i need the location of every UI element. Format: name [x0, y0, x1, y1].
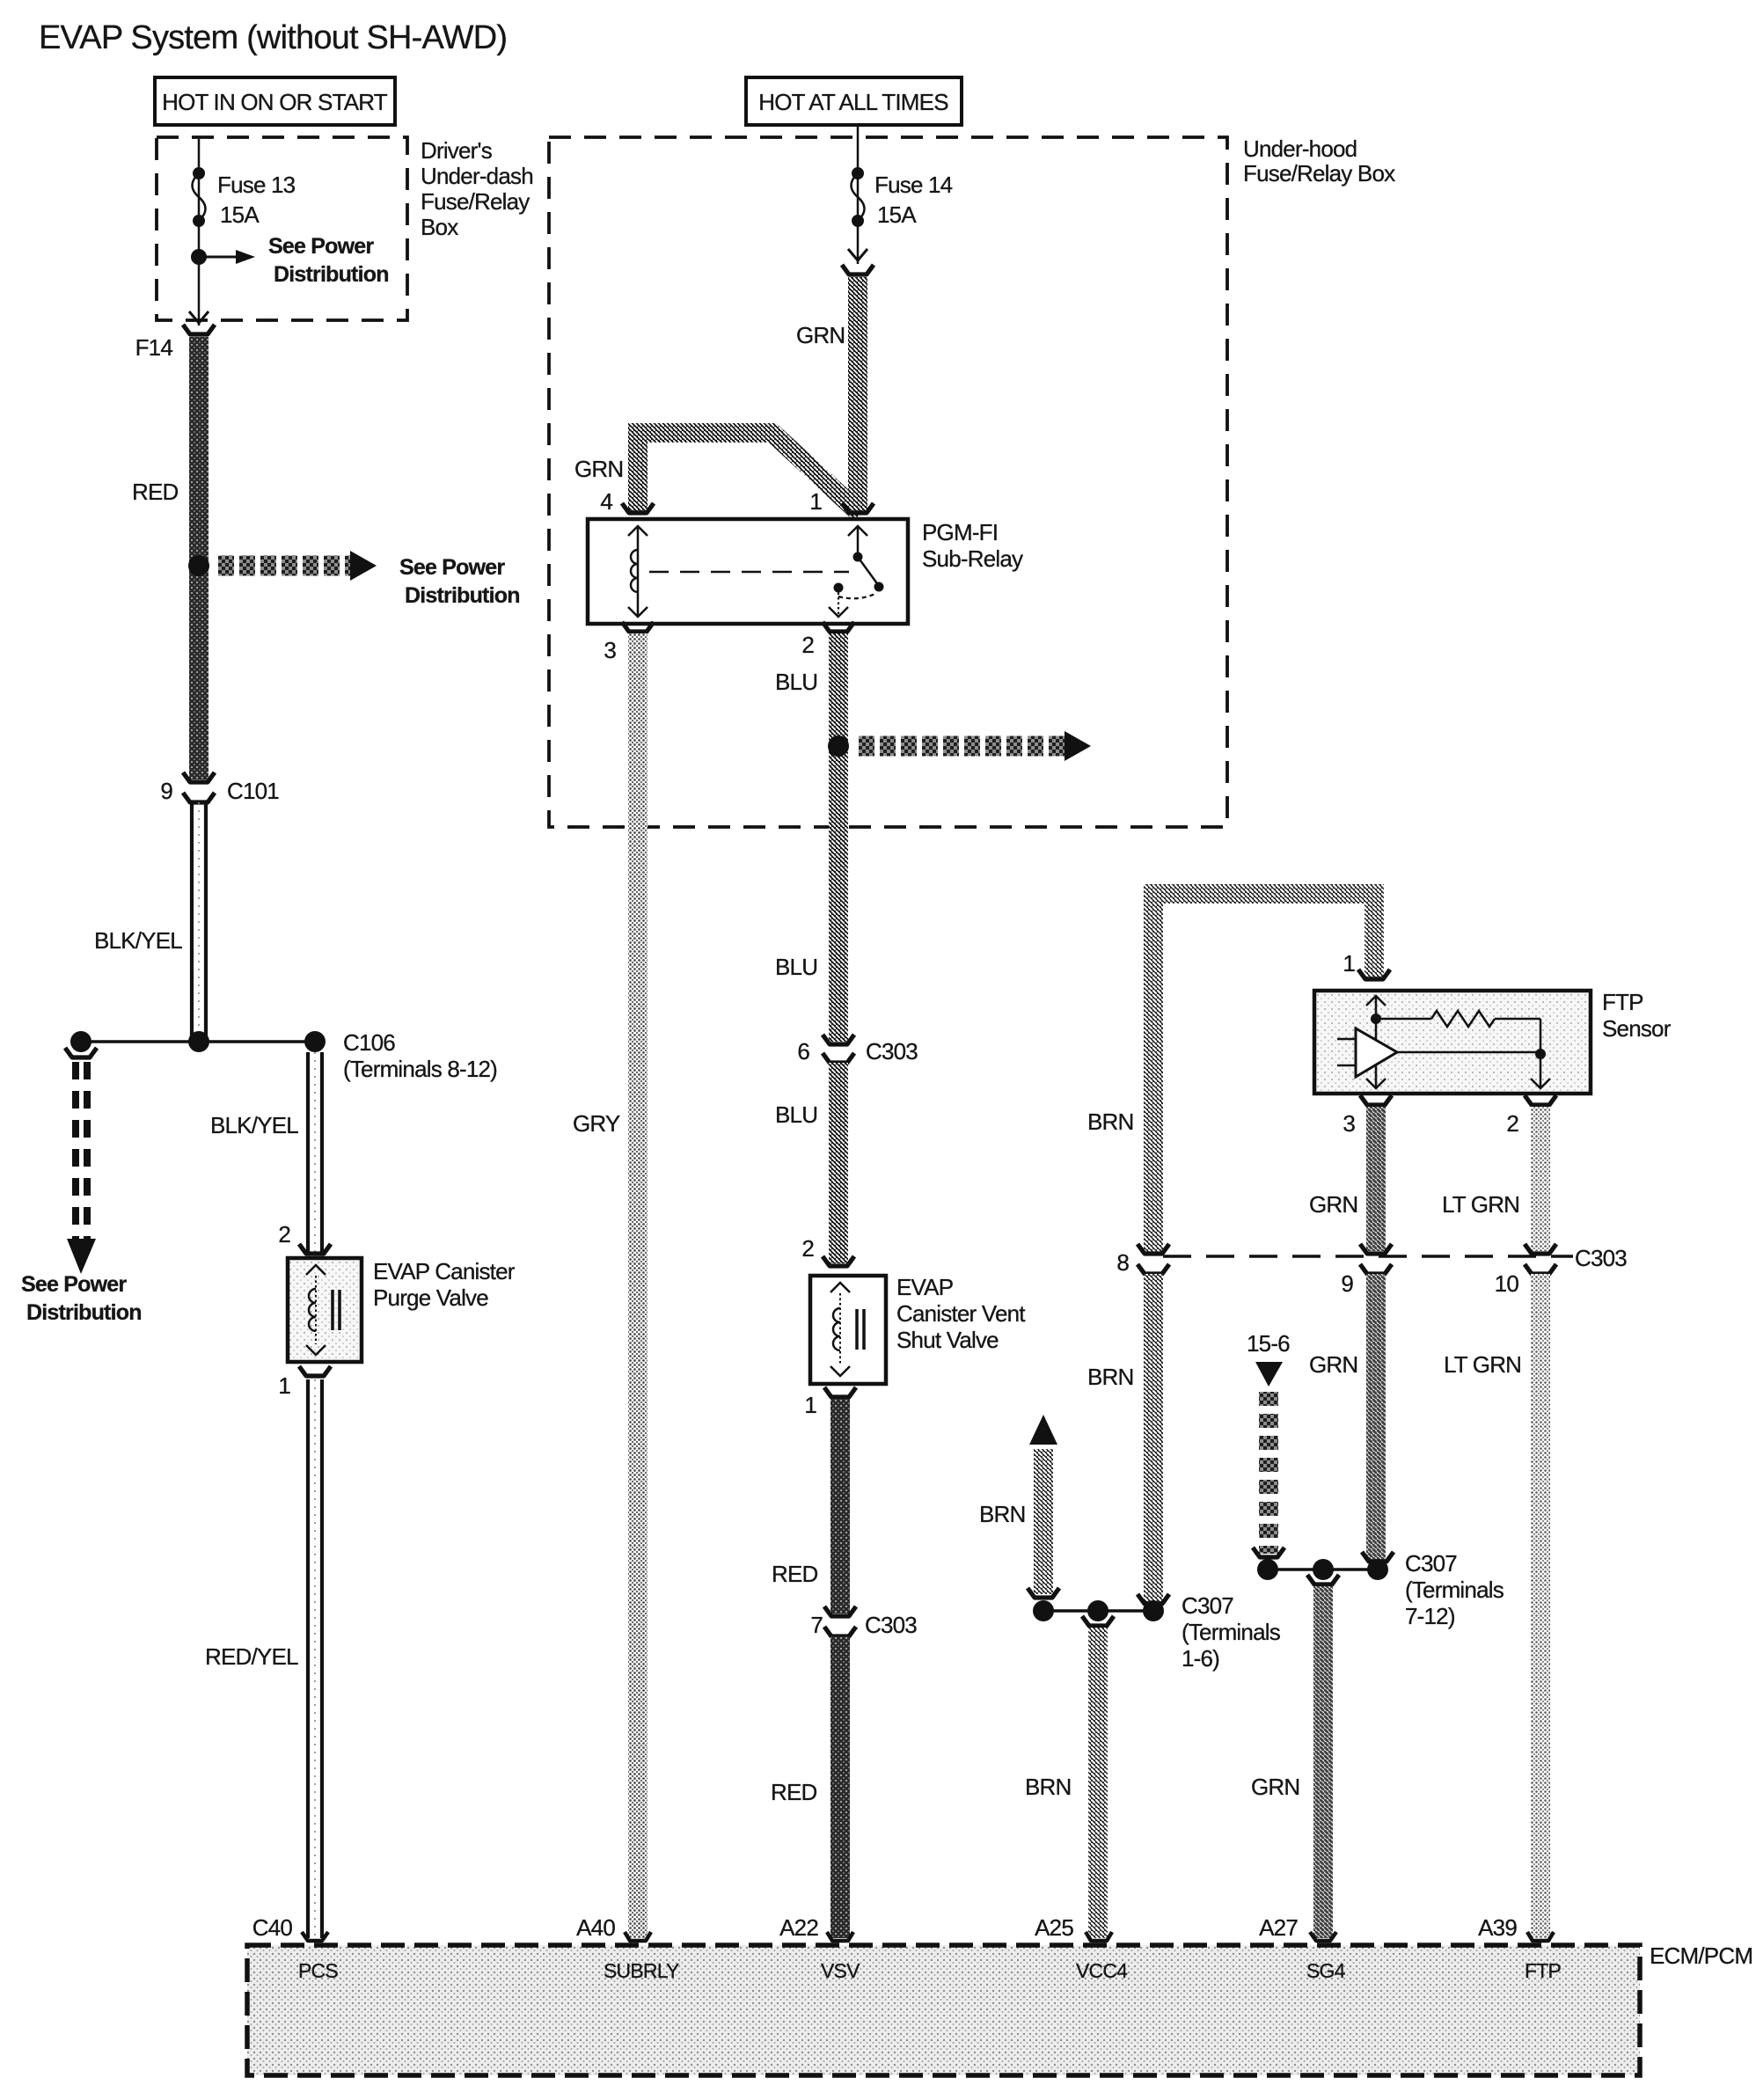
- svg-text:Canister Vent: Canister Vent: [896, 1300, 1026, 1327]
- svg-text:VCC4: VCC4: [1076, 1959, 1128, 1982]
- svg-text:HOT IN ON OR START: HOT IN ON OR START: [162, 89, 388, 115]
- svg-text:15A: 15A: [877, 201, 917, 228]
- svg-text:BRN: BRN: [1087, 1109, 1134, 1135]
- svg-text:BLU: BLU: [775, 1101, 817, 1128]
- svg-text:Under-hood: Under-hood: [1243, 135, 1357, 162]
- svg-text:Distribution: Distribution: [405, 583, 520, 608]
- svg-text:6: 6: [797, 1038, 809, 1065]
- svg-text:Shut Valve: Shut Valve: [896, 1327, 999, 1353]
- svg-text:1: 1: [278, 1372, 290, 1399]
- svg-text:1: 1: [809, 488, 822, 515]
- svg-text:Fuse/Relay Box: Fuse/Relay Box: [1243, 160, 1395, 187]
- svg-text:C101: C101: [227, 778, 279, 804]
- svg-text:C106: C106: [343, 1029, 395, 1056]
- svg-text:2: 2: [278, 1221, 290, 1248]
- svg-text:Box: Box: [421, 214, 458, 240]
- svg-text:SUBRLY: SUBRLY: [604, 1959, 679, 1982]
- svg-text:3: 3: [1343, 1110, 1355, 1137]
- svg-text:C307: C307: [1182, 1592, 1233, 1619]
- svg-text:GRN: GRN: [1251, 1774, 1299, 1800]
- svg-text:GRN: GRN: [574, 456, 623, 482]
- svg-text:A40: A40: [576, 1914, 615, 1941]
- svg-text:RED: RED: [132, 479, 179, 505]
- svg-text:Fuse 13: Fuse 13: [217, 172, 296, 198]
- svg-text:ECM/PCM: ECM/PCM: [1650, 1943, 1752, 1969]
- svg-text:HOT AT ALL TIMES: HOT AT ALL TIMES: [758, 89, 948, 115]
- svg-text:C303: C303: [865, 1612, 917, 1638]
- svg-text:8: 8: [1116, 1249, 1129, 1276]
- svg-text:EVAP System (without SH-AWD): EVAP System (without SH-AWD): [39, 19, 507, 56]
- svg-text:A22: A22: [779, 1914, 818, 1941]
- svg-text:C307: C307: [1405, 1550, 1457, 1577]
- svg-text:GRN: GRN: [1309, 1191, 1357, 1218]
- svg-text:4: 4: [600, 488, 612, 515]
- svg-text:7-12): 7-12): [1405, 1603, 1455, 1629]
- svg-text:BRN: BRN: [1087, 1364, 1134, 1390]
- svg-text:Fuse 14: Fuse 14: [874, 172, 953, 198]
- svg-text:10: 10: [1495, 1270, 1519, 1297]
- svg-text:LT GRN: LT GRN: [1442, 1191, 1519, 1218]
- svg-text:RED: RED: [771, 1779, 817, 1805]
- svg-text:Sensor: Sensor: [1602, 1015, 1672, 1042]
- svg-text:7: 7: [810, 1612, 823, 1638]
- svg-text:3: 3: [604, 637, 616, 663]
- svg-text:PCS: PCS: [298, 1959, 338, 1982]
- svg-text:A27: A27: [1259, 1914, 1298, 1941]
- svg-text:C303: C303: [1575, 1245, 1627, 1271]
- svg-text:15A: 15A: [220, 201, 260, 228]
- svg-text:SG4: SG4: [1306, 1959, 1346, 1982]
- svg-text:F14: F14: [135, 334, 173, 361]
- svg-text:RED: RED: [772, 1561, 818, 1587]
- svg-text:9: 9: [160, 778, 172, 804]
- svg-text:See Power: See Power: [399, 555, 505, 580]
- svg-text:2: 2: [801, 632, 814, 658]
- svg-text:See Power: See Power: [268, 234, 374, 259]
- svg-text:BRN: BRN: [979, 1501, 1026, 1527]
- svg-text:(Terminals: (Terminals: [1182, 1619, 1281, 1645]
- svg-text:LT GRN: LT GRN: [1444, 1351, 1521, 1378]
- svg-text:Sub-Relay: Sub-Relay: [922, 545, 1023, 572]
- svg-text:2: 2: [1506, 1110, 1518, 1137]
- svg-text:9: 9: [1341, 1270, 1353, 1297]
- svg-text:BLK/YEL: BLK/YEL: [94, 927, 182, 954]
- svg-text:1: 1: [1343, 950, 1355, 977]
- svg-text:(Terminals 8-12): (Terminals 8-12): [343, 1056, 497, 1082]
- svg-text:EVAP: EVAP: [896, 1274, 953, 1300]
- svg-text:A39: A39: [1478, 1914, 1517, 1941]
- svg-text:(Terminals: (Terminals: [1405, 1577, 1504, 1603]
- svg-text:Under-dash: Under-dash: [421, 163, 533, 189]
- svg-text:VSV: VSV: [821, 1959, 860, 1982]
- svg-text:GRN: GRN: [796, 322, 845, 348]
- svg-text:1: 1: [804, 1392, 816, 1418]
- svg-text:See Power: See Power: [21, 1272, 127, 1297]
- svg-text:1-6): 1-6): [1182, 1645, 1219, 1672]
- svg-text:BLU: BLU: [775, 669, 817, 695]
- svg-text:RED/YEL: RED/YEL: [205, 1643, 298, 1670]
- svg-text:FTP: FTP: [1602, 989, 1643, 1015]
- svg-text:BLK/YEL: BLK/YEL: [210, 1112, 298, 1138]
- svg-text:C40: C40: [252, 1914, 293, 1941]
- svg-text:2: 2: [801, 1235, 814, 1262]
- svg-text:A25: A25: [1035, 1914, 1073, 1941]
- svg-text:15-6: 15-6: [1247, 1330, 1290, 1357]
- svg-text:GRY: GRY: [573, 1110, 620, 1137]
- svg-text:Distribution: Distribution: [274, 262, 389, 287]
- svg-text:FTP: FTP: [1525, 1959, 1561, 1982]
- svg-text:BRN: BRN: [1025, 1774, 1072, 1800]
- svg-text:GRN: GRN: [1309, 1351, 1357, 1378]
- svg-text:C303: C303: [866, 1038, 918, 1065]
- svg-text:Fuse/Relay: Fuse/Relay: [421, 188, 530, 215]
- svg-text:PGM-FI: PGM-FI: [922, 519, 998, 545]
- svg-text:EVAP Canister: EVAP Canister: [373, 1258, 516, 1284]
- svg-text:Driver's: Driver's: [421, 137, 493, 164]
- svg-text:BLU: BLU: [775, 954, 817, 980]
- svg-text:Distribution: Distribution: [26, 1300, 142, 1325]
- svg-text:Purge Valve: Purge Valve: [373, 1284, 488, 1311]
